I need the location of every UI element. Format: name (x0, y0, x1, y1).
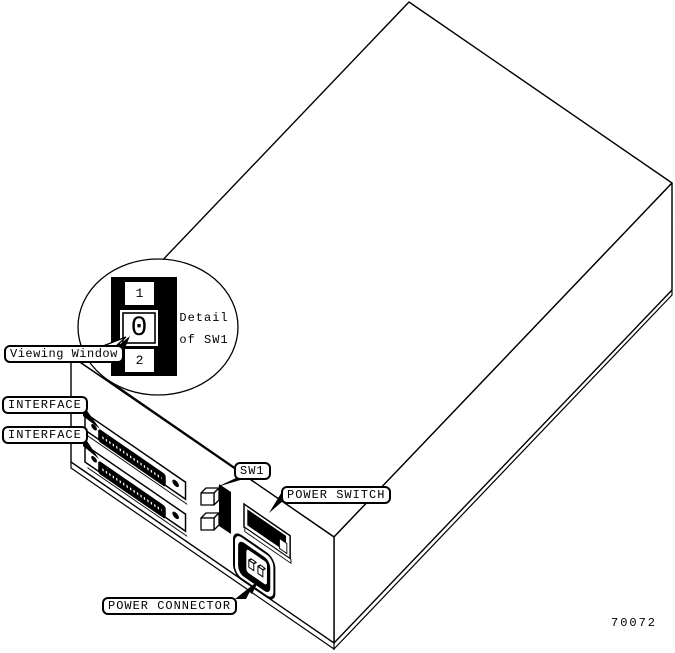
interface-label-bottom-text: INTERFACE (8, 428, 82, 442)
power-connector-label-text: POWER CONNECTOR (108, 599, 231, 613)
power-connector-label: POWER CONNECTOR (102, 597, 237, 615)
sw1-position-top: 1 (125, 282, 154, 305)
sw1-switch-body (219, 484, 231, 534)
sw1-label-text: SW1 (240, 464, 265, 478)
power-switch-label: POWER SWITCH (281, 486, 391, 504)
sw1-button-front-face (201, 518, 214, 530)
sw1-position-bottom: 2 (125, 349, 154, 372)
sw1-button-front-face (201, 493, 214, 505)
sw1-button-lower (201, 513, 219, 530)
detail-caption-line2: of SW1 (165, 329, 243, 351)
power-switch-label-text: POWER SWITCH (287, 488, 385, 502)
figure-number: 70072 (611, 616, 657, 630)
viewing-window-label: Viewing Window (4, 345, 124, 363)
viewing-window-label-text: Viewing Window (10, 347, 118, 361)
sw1-label: SW1 (234, 462, 271, 480)
sw1-button-upper (201, 488, 219, 505)
detail-caption: Detail of SW1 (165, 307, 243, 351)
sw1-position-middle: 0 (123, 313, 155, 343)
device-rear-isometric-drawing (0, 0, 675, 653)
figure-canvas: Viewing Window INTERFACE INTERFACE SW1 P… (0, 0, 675, 653)
interface-label-top: INTERFACE (2, 396, 88, 414)
interface-label-bottom: INTERFACE (2, 426, 88, 444)
interface-label-top-text: INTERFACE (8, 398, 82, 412)
detail-caption-line1: Detail (165, 307, 243, 329)
